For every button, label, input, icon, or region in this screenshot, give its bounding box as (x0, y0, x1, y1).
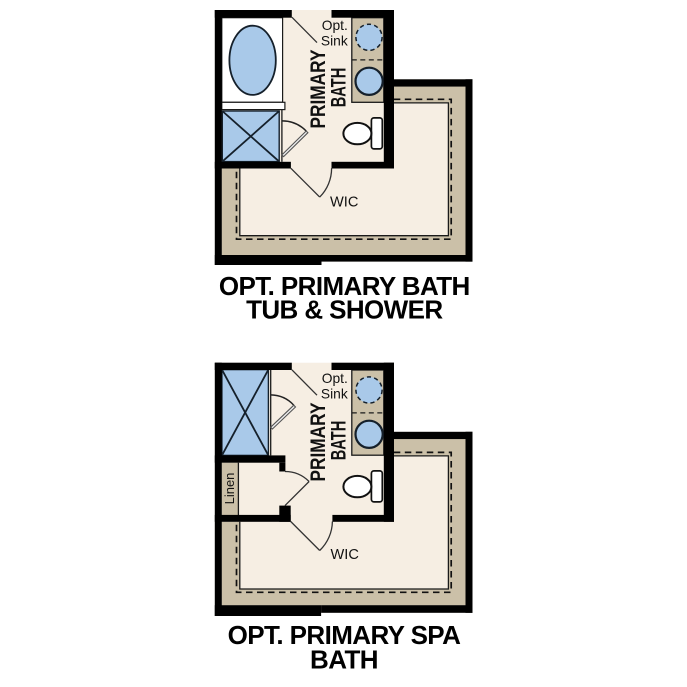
svg-text:WIC: WIC (331, 547, 359, 563)
svg-text:BATH: BATH (328, 68, 351, 108)
svg-text:Opt.: Opt. (322, 18, 348, 33)
svg-text:BATH: BATH (328, 421, 351, 461)
svg-text:WIC: WIC (330, 195, 358, 211)
svg-text:Sink: Sink (321, 34, 348, 49)
svg-text:Sink: Sink (321, 387, 348, 402)
svg-text:BATH: BATH (310, 645, 378, 675)
svg-text:Opt.: Opt. (322, 371, 348, 386)
svg-text:TUB & SHOWER: TUB & SHOWER (246, 294, 443, 324)
svg-text:Linen: Linen (222, 473, 237, 505)
